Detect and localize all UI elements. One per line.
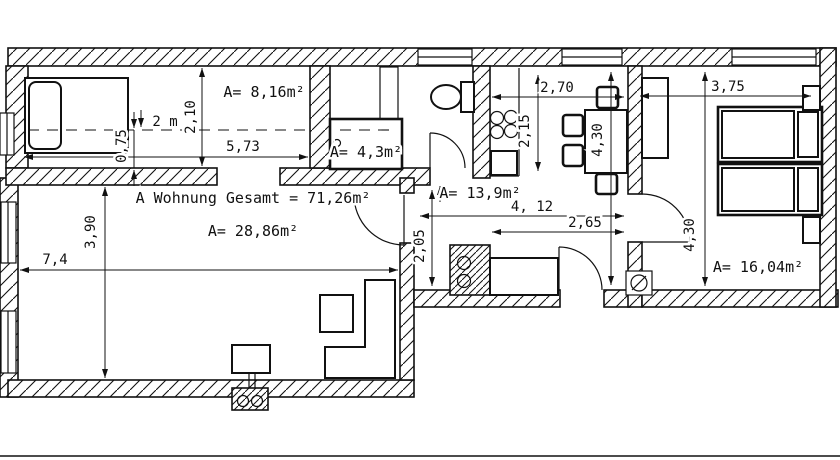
room-label-bedroom: A= 16,04m²: [713, 258, 803, 276]
dim-bedroom-width: 3,75: [711, 79, 745, 95]
wall-wc-right: [473, 66, 490, 178]
dim-hall-depth: 2,05: [412, 229, 428, 263]
nightstand: [803, 86, 820, 110]
hall-shaft: [450, 245, 490, 295]
dim-hall-width: 2,65: [568, 215, 602, 231]
window-dining: [562, 49, 622, 65]
dim-bed-offset: 0,75: [114, 129, 130, 163]
stove-burners: [491, 111, 518, 139]
wall-bedroom-bottom: [642, 290, 838, 307]
chair: [596, 174, 617, 194]
floor-plan: A= 8,16m² 2 m 2,10 0,75 5,73 A= 4,3m² A …: [0, 0, 840, 460]
dim-living-width: 7,4: [42, 252, 67, 268]
wall-dining-bedroom-upper: [628, 66, 642, 194]
living-table: [320, 295, 353, 332]
chair: [563, 145, 583, 166]
window-living-left-2: [1, 311, 16, 373]
window-bedroom: [732, 49, 816, 65]
window-living-left-1: [1, 202, 16, 263]
dim-bedroom-depth: 4,30: [682, 218, 698, 252]
dim-dining-depth: 4,30: [590, 123, 606, 157]
toilet: [431, 82, 474, 112]
dim-alcove-depth: 2,10: [183, 100, 199, 134]
total-area-label: A Wohnung Gesamt = 71,26m²: [136, 189, 371, 207]
dim-alcove-width: 5,73: [226, 139, 260, 155]
room-label-bath: A= 4,3m²: [330, 143, 402, 161]
window-wc: [418, 49, 472, 65]
wall-alcove-right: [310, 66, 330, 168]
floor-plan-drawing: A= 8,16m² 2 m 2,10 0,75 5,73 A= 4,3m² A …: [0, 0, 840, 460]
kitchen-sink: [491, 151, 517, 175]
chair: [563, 115, 583, 136]
dim-living-depth: 3,90: [83, 215, 99, 249]
bath-cupboard: [380, 67, 398, 119]
single-bed: [25, 78, 128, 153]
nightstand: [803, 217, 820, 243]
room-label-kitchen: A= 13,9m²: [439, 184, 520, 202]
dim-kitchen-width: 2,70: [540, 80, 574, 96]
dim-kitchen-depth: 2,15: [517, 114, 533, 148]
door-entry: [559, 247, 602, 290]
room-label-living: A= 28,86m²: [208, 222, 298, 240]
dim-hall-total-width: 4, 12: [511, 199, 553, 215]
room-label-alcove: A= 8,16m²: [223, 83, 304, 101]
hall-cabinet: [490, 258, 558, 295]
wall-living-bottom: [8, 380, 414, 397]
column-symbol: [626, 271, 652, 295]
wall-alcove-bottom-left: [6, 168, 217, 185]
window-alcove-left: [0, 113, 14, 155]
height-marker-label: 2 m: [152, 114, 177, 130]
double-bed: [718, 107, 822, 215]
chimney: [232, 388, 268, 410]
wardrobe: [642, 78, 668, 158]
door-wc: [430, 133, 465, 168]
wall-hall-left-upper: [400, 178, 414, 193]
